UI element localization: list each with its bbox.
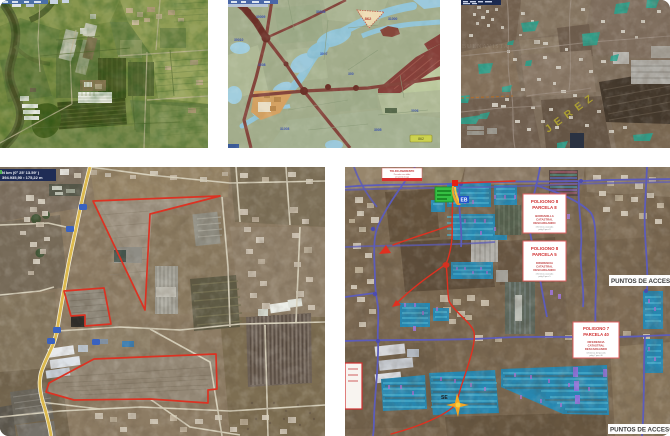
svg-text:amarento mayo: amarento mayo xyxy=(395,176,410,179)
svg-text:polig 8 parc 8: polig 8 parc 8 xyxy=(538,229,551,231)
svg-text:EB: EB xyxy=(461,198,468,204)
svg-text:DESCARGANDO: DESCARGANDO xyxy=(533,268,556,272)
svg-text:POLIGONO 8: POLIGONO 8 xyxy=(531,199,559,204)
svg-text:DESCARGANDO: DESCARGANDO xyxy=(585,347,608,351)
svg-text:polig 7 parc 40: polig 7 parc 40 xyxy=(589,355,603,357)
svg-text:PARCELA 5: PARCELA 5 xyxy=(532,252,557,257)
svg-text:polig 8 parc 5: polig 8 parc 5 xyxy=(538,276,551,278)
svg-text:PARCELA 40: PARCELA 40 xyxy=(583,332,609,337)
svg-text:BUENAVISTA: BUENAVISTA xyxy=(462,44,509,50)
svg-text:394.935,90 • 175,22 m: 394.935,90 • 175,22 m xyxy=(2,175,43,180)
svg-text:SE: SE xyxy=(441,395,448,401)
svg-text:TOLDO AMARENTO: TOLDO AMARENTO xyxy=(390,169,415,173)
svg-text:POLIGONO 8: POLIGONO 8 xyxy=(531,246,559,251)
svg-text:POLIGONO 7: POLIGONO 7 xyxy=(583,326,610,331)
svg-text:DESCARGANDO: DESCARGANDO xyxy=(533,221,556,225)
svg-text:PUNTOS DE ACCESO: PUNTOS DE ACCESO xyxy=(610,427,670,434)
svg-text:PARCELA 8: PARCELA 8 xyxy=(532,205,557,210)
svg-text:PUNTOS DE ACCESO: PUNTOS DE ACCESO xyxy=(611,278,670,285)
